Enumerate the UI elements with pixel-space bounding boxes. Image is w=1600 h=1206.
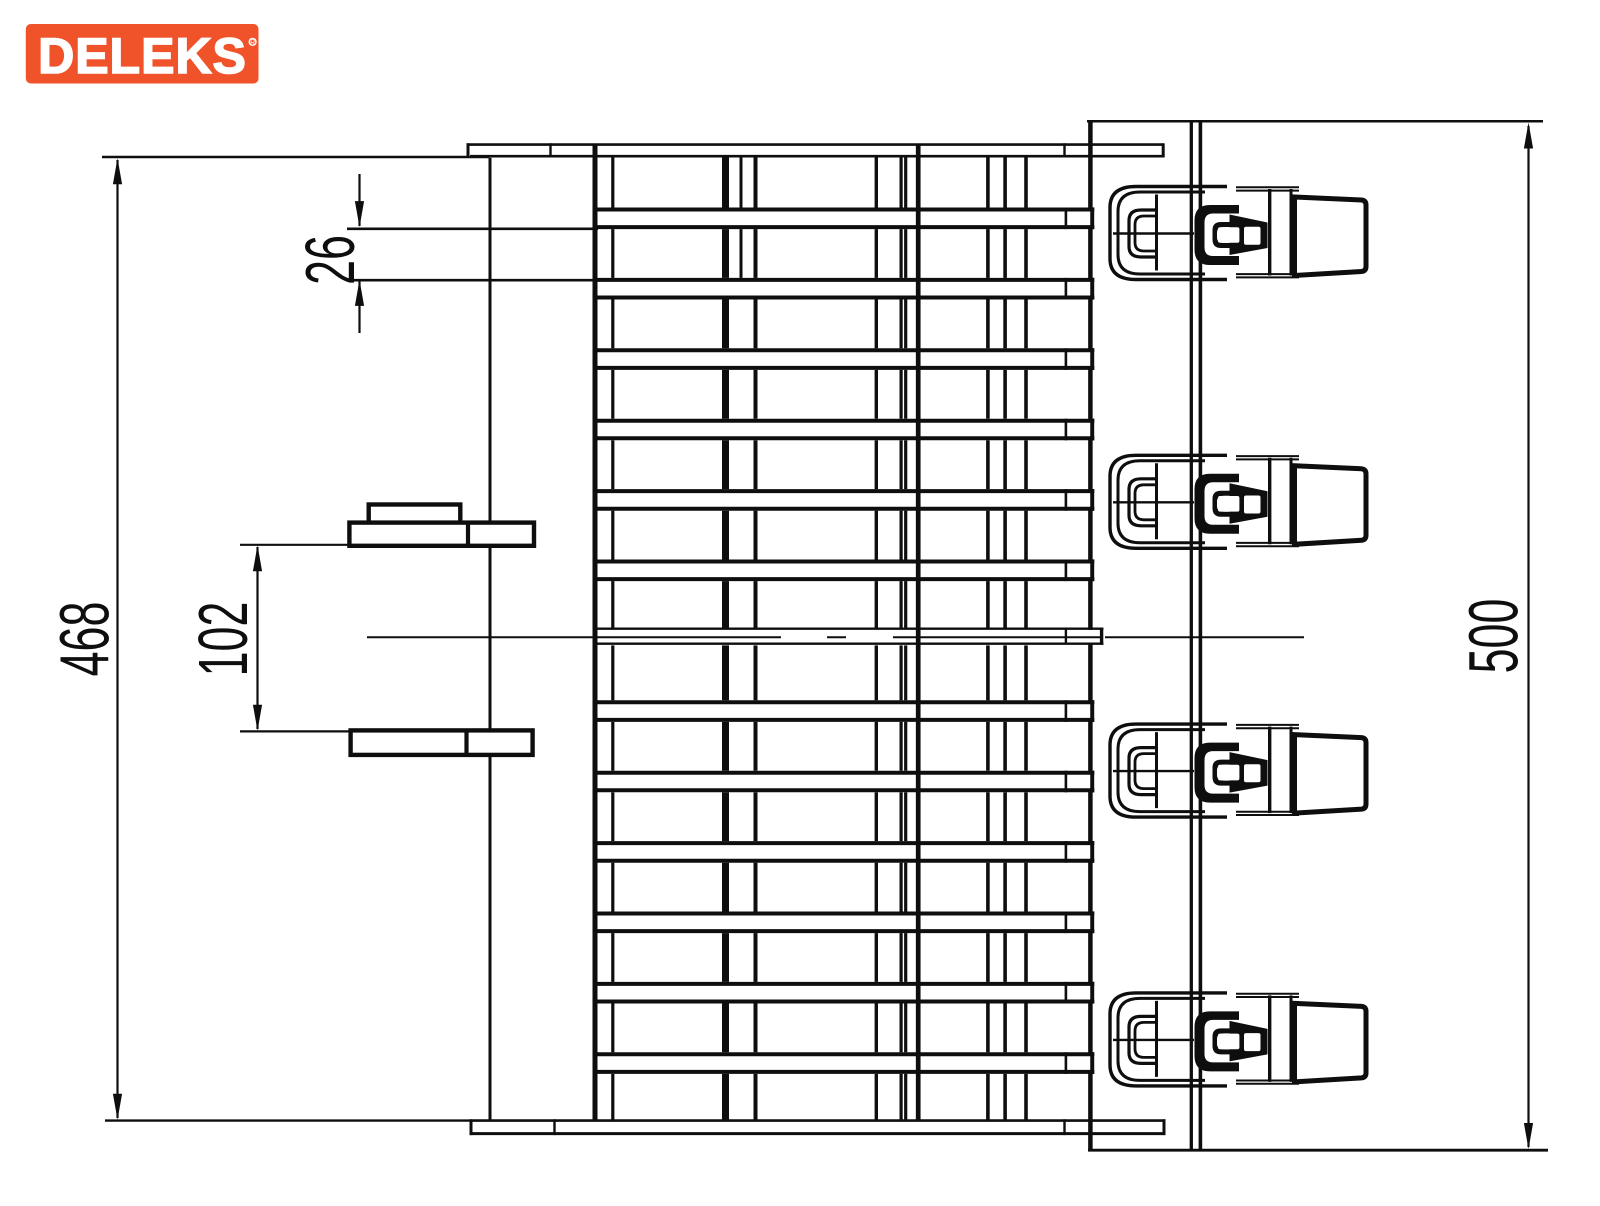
- svg-text:102: 102: [185, 602, 262, 677]
- svg-text:R: R: [250, 39, 255, 46]
- svg-text:468: 468: [47, 602, 124, 677]
- svg-text:500: 500: [1456, 599, 1533, 674]
- svg-text:DELEKS: DELEKS: [38, 28, 247, 84]
- svg-text:26: 26: [292, 235, 369, 285]
